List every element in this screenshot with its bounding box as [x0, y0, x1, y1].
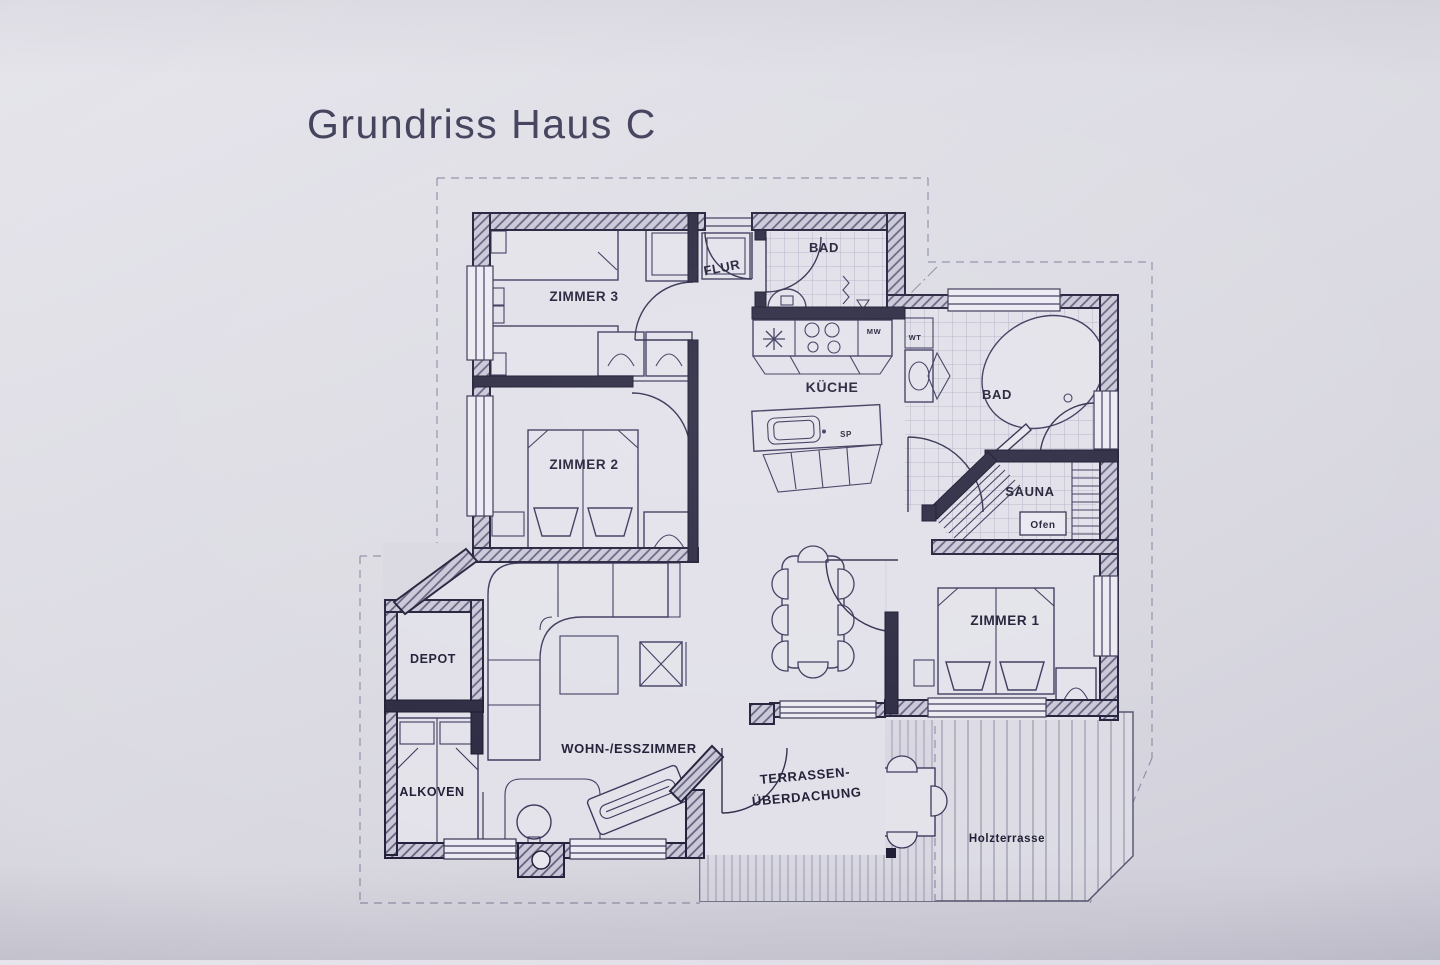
- label-ofen: Ofen: [1030, 520, 1055, 531]
- window: [1094, 391, 1118, 449]
- window: [1094, 576, 1118, 656]
- label-bad-right: BAD: [982, 387, 1012, 402]
- label-zimmer3: ZIMMER 3: [549, 289, 618, 304]
- dining-table: [772, 546, 854, 678]
- label-kueche: KÜCHE: [806, 379, 859, 395]
- page-title: Grundriss Haus C: [307, 101, 657, 148]
- label-wohn-esszimmer: WOHN-/ESSZIMMER: [561, 741, 696, 756]
- window: [928, 698, 1046, 717]
- window: [948, 289, 1060, 311]
- label-sp: SP: [840, 430, 852, 439]
- ofen-box: Ofen: [1020, 512, 1066, 535]
- label-wt: WT: [909, 333, 922, 342]
- label-sauna: SAUNA: [1005, 484, 1054, 499]
- label-holzterrasse: Holzterrasse: [969, 833, 1045, 845]
- label-mw: MW: [867, 327, 882, 336]
- label-bad-top: BAD: [809, 240, 839, 255]
- alkoven-bed: [396, 718, 478, 843]
- tv-table: [640, 642, 686, 686]
- window: [467, 396, 493, 516]
- window: [467, 266, 493, 360]
- window: [444, 839, 516, 859]
- window: [570, 839, 666, 859]
- window: [780, 701, 876, 718]
- label-depot: DEPOT: [410, 652, 456, 666]
- label-alkoven: ALKOVEN: [399, 785, 464, 799]
- label-zimmer1: ZIMMER 1: [970, 613, 1039, 628]
- label-zimmer2: ZIMMER 2: [549, 457, 618, 472]
- floor-plan-svg: ZIMMER 3 FLUR BAD KÜCHE BAD SAUNA ZIMMER…: [0, 0, 1440, 960]
